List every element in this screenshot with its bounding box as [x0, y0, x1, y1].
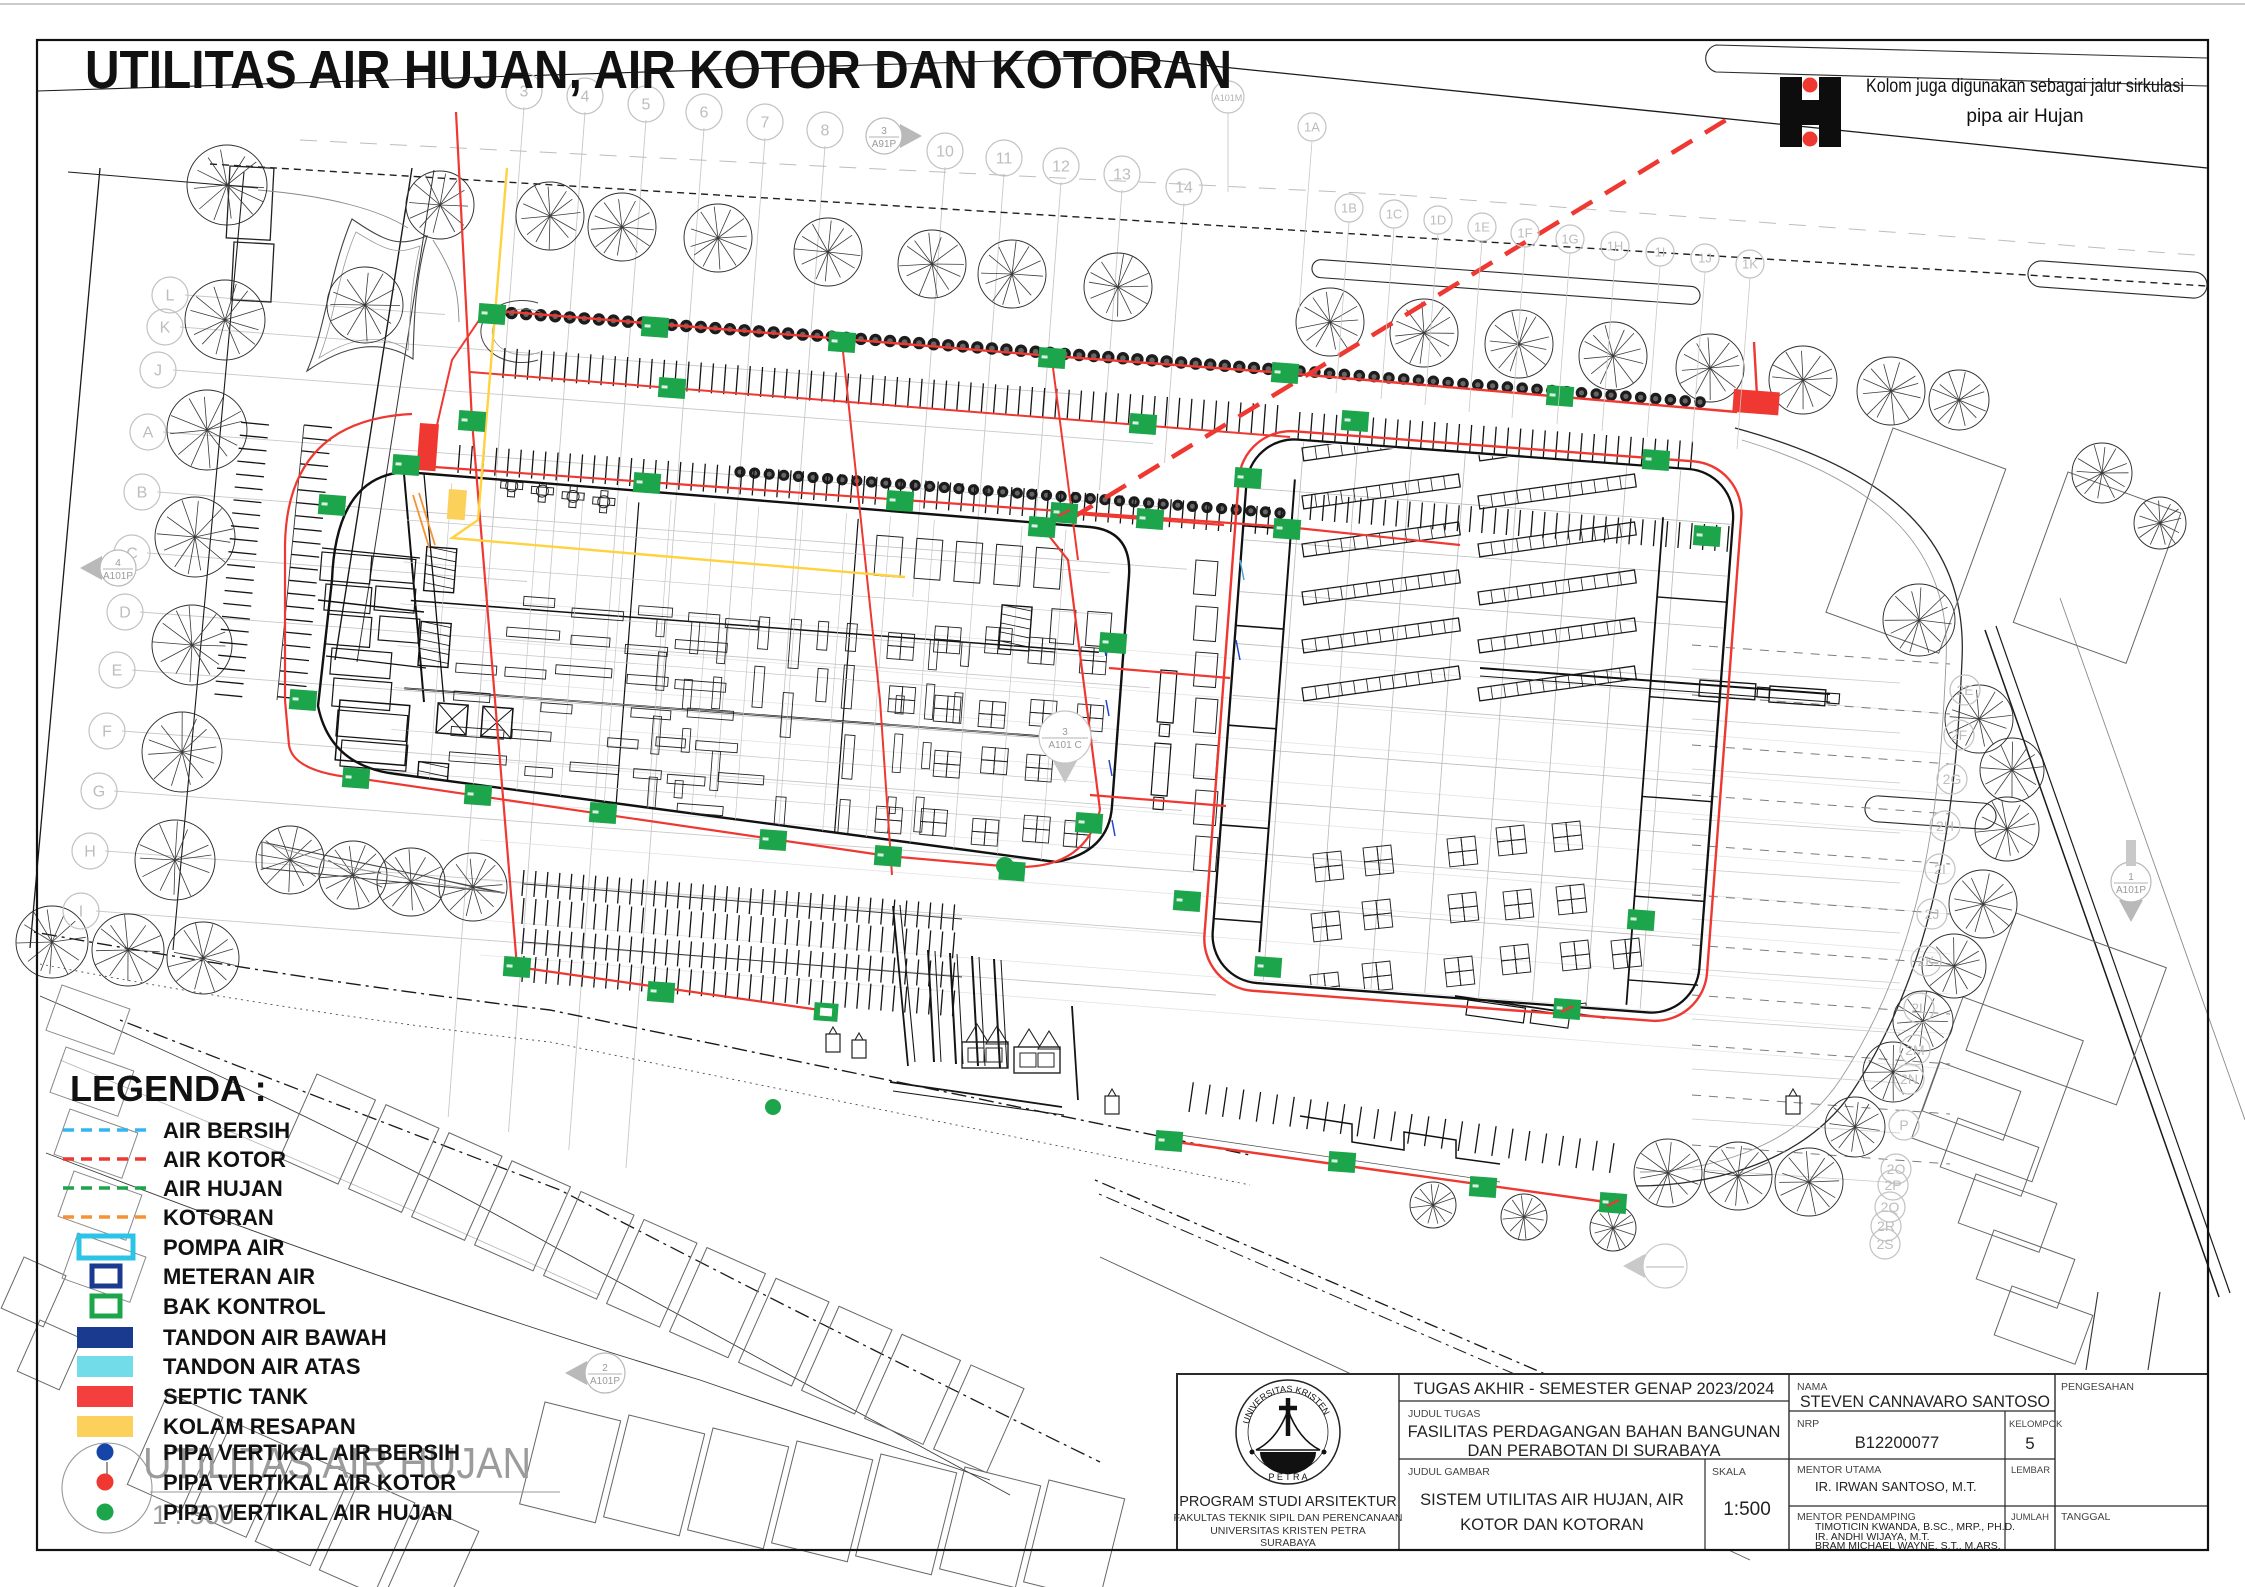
- svg-text:JUMLAH: JUMLAH: [2011, 1512, 2049, 1523]
- svg-text:TANGGAL: TANGGAL: [2061, 1511, 2111, 1523]
- svg-text:10: 10: [936, 144, 954, 161]
- svg-text:1H: 1H: [1607, 239, 1624, 254]
- svg-text:AIR BERSIH: AIR BERSIH: [163, 1118, 290, 1143]
- svg-text:METERAN AIR: METERAN AIR: [163, 1264, 315, 1289]
- svg-text:13: 13: [1113, 167, 1131, 184]
- svg-text:K: K: [160, 320, 171, 337]
- svg-text:11: 11: [996, 151, 1013, 168]
- svg-text:2I: 2I: [1934, 861, 1946, 877]
- svg-text:PIPA VERTIKAL AIR KOTOR: PIPA VERTIKAL AIR KOTOR: [163, 1470, 456, 1495]
- svg-text:NRP: NRP: [1797, 1418, 1819, 1430]
- svg-text:H: H: [84, 844, 96, 861]
- svg-text:SKALA: SKALA: [1712, 1466, 1746, 1478]
- svg-text:B: B: [137, 485, 148, 502]
- svg-text:1G: 1G: [1561, 232, 1578, 247]
- svg-text:2Q: 2Q: [1881, 1199, 1900, 1215]
- svg-text:AIR HUJAN: AIR HUJAN: [163, 1176, 283, 1201]
- svg-text:2S: 2S: [1876, 1236, 1893, 1252]
- svg-text:2E: 2E: [1956, 682, 1973, 698]
- svg-text:POMPA AIR: POMPA AIR: [163, 1235, 285, 1260]
- svg-text:8: 8: [821, 123, 830, 140]
- svg-text:D: D: [119, 605, 131, 622]
- svg-text:KOTOR DAN KOTORAN: KOTOR DAN KOTORAN: [1460, 1516, 1644, 1534]
- svg-text:UTILITAS AIR HUJAN, AIR KOTOR: UTILITAS AIR HUJAN, AIR KOTOR DAN KOTORA…: [85, 40, 1232, 100]
- svg-text:A: A: [143, 425, 154, 442]
- svg-text:2N: 2N: [1900, 1071, 1918, 1087]
- svg-text:LEMBAR: LEMBAR: [2011, 1465, 2050, 1476]
- svg-text:SEPTIC TANK: SEPTIC TANK: [163, 1384, 308, 1409]
- svg-text:G: G: [93, 784, 105, 801]
- svg-text:FAKULTAS TEKNIK SIPIL DAN PERE: FAKULTAS TEKNIK SIPIL DAN PERENCANAAN: [1174, 1512, 1403, 1524]
- svg-text:SURABAYA: SURABAYA: [1260, 1537, 1316, 1549]
- svg-text:DAN PERABOTAN DI SURABAYA: DAN PERABOTAN DI SURABAYA: [1467, 1442, 1720, 1460]
- svg-text:1J: 1J: [1698, 251, 1712, 266]
- svg-text:A101P: A101P: [2116, 885, 2146, 896]
- svg-text:A101P: A101P: [590, 1376, 620, 1387]
- svg-text:KOLAM RESAPAN: KOLAM RESAPAN: [163, 1414, 356, 1439]
- svg-text:7: 7: [761, 115, 770, 132]
- svg-text:1C: 1C: [1386, 207, 1403, 222]
- svg-text:pipa air Hujan: pipa air Hujan: [1966, 106, 2083, 127]
- svg-text:PENGESAHAN: PENGESAHAN: [2061, 1381, 2134, 1393]
- svg-text:STEVEN CANNAVARO SANTOSO: STEVEN CANNAVARO SANTOSO: [1800, 1393, 2050, 1411]
- svg-text:2H: 2H: [1936, 818, 1954, 834]
- svg-text:2P: 2P: [1884, 1177, 1901, 1193]
- svg-text:L: L: [166, 288, 175, 305]
- svg-text:NAMA: NAMA: [1797, 1381, 1827, 1393]
- svg-text:2F: 2F: [1951, 727, 1967, 743]
- svg-text:1D: 1D: [1430, 213, 1447, 228]
- svg-text:TANDON AIR BAWAH: TANDON AIR BAWAH: [163, 1325, 387, 1350]
- svg-text:E: E: [112, 663, 123, 680]
- svg-text:PIPA VERTIKAL AIR BERSIH: PIPA VERTIKAL AIR BERSIH: [163, 1440, 460, 1465]
- svg-text:2M: 2M: [1905, 1042, 1924, 1058]
- svg-text:6: 6: [700, 105, 709, 122]
- svg-text:I: I: [79, 904, 83, 921]
- svg-text:1B: 1B: [1341, 201, 1357, 216]
- svg-text:1F: 1F: [1517, 226, 1532, 241]
- svg-text:TANDON AIR ATAS: TANDON AIR ATAS: [163, 1354, 361, 1379]
- svg-text:1E: 1E: [1474, 220, 1490, 235]
- svg-text:A101 C: A101 C: [1048, 740, 1081, 751]
- svg-text:1: 1: [2128, 872, 2134, 883]
- svg-text:12: 12: [1052, 159, 1070, 176]
- svg-text:AIR KOTOR: AIR KOTOR: [163, 1147, 286, 1172]
- svg-text:F: F: [102, 724, 112, 741]
- svg-text:J: J: [154, 363, 162, 380]
- svg-text:1A: 1A: [1304, 120, 1320, 135]
- svg-text:P E T R A: P E T R A: [1268, 1472, 1307, 1482]
- svg-text:1K: 1K: [1742, 257, 1758, 272]
- svg-text:KELOMPOK: KELOMPOK: [2009, 1419, 2063, 1430]
- svg-text:5: 5: [2025, 1434, 2034, 1453]
- svg-text:1:500: 1:500: [1723, 1499, 1771, 1520]
- svg-text:4: 4: [115, 558, 121, 569]
- svg-text:3: 3: [881, 126, 887, 137]
- svg-text:2G: 2G: [1943, 771, 1962, 787]
- svg-text:Kolom juga digunakan sebagai j: Kolom juga digunakan sebagai jalur sirku…: [1866, 76, 2184, 97]
- svg-text:JUDUL TUGAS: JUDUL TUGAS: [1408, 1408, 1480, 1420]
- svg-text:3: 3: [1062, 727, 1068, 738]
- svg-text:LEGENDA :: LEGENDA :: [70, 1068, 267, 1109]
- svg-text:PIPA VERTIKAL AIR HUJAN: PIPA VERTIKAL AIR HUJAN: [163, 1500, 453, 1525]
- svg-text:2: 2: [602, 1363, 608, 1374]
- svg-text:2K: 2K: [1917, 953, 1935, 969]
- svg-text:IR. IRWAN SANTOSO, M.T.: IR. IRWAN SANTOSO, M.T.: [1815, 1479, 1977, 1494]
- svg-text:A101P: A101P: [103, 571, 133, 582]
- svg-text:A91P: A91P: [872, 139, 897, 150]
- svg-text:2O: 2O: [1887, 1161, 1906, 1177]
- svg-text:BAK KONTROL: BAK KONTROL: [163, 1294, 326, 1319]
- svg-text:SISTEM UTILITAS AIR HUJAN, AIR: SISTEM UTILITAS AIR HUJAN, AIR: [1420, 1491, 1684, 1509]
- svg-text:2L: 2L: [1911, 1000, 1927, 1016]
- svg-text:P: P: [1899, 1117, 1908, 1133]
- svg-text:TUGAS AKHIR - SEMESTER GENAP 2: TUGAS AKHIR - SEMESTER GENAP 2023/2024: [1413, 1380, 1774, 1398]
- svg-text:PROGRAM STUDI ARSITEKTUR: PROGRAM STUDI ARSITEKTUR: [1179, 1494, 1397, 1510]
- svg-text:14: 14: [1175, 180, 1193, 197]
- svg-text:UNIVERSITAS KRISTEN PETRA: UNIVERSITAS KRISTEN PETRA: [1210, 1525, 1366, 1537]
- svg-text:KOTORAN: KOTORAN: [163, 1205, 274, 1230]
- svg-text:B12200077: B12200077: [1855, 1434, 1939, 1452]
- svg-text:1I: 1I: [1655, 245, 1666, 260]
- svg-text:FASILITAS PERDAGANGAN BAHAN BA: FASILITAS PERDAGANGAN BAHAN BANGUNAN: [1408, 1423, 1781, 1441]
- svg-text:MENTOR UTAMA: MENTOR UTAMA: [1797, 1464, 1881, 1476]
- svg-text:JUDUL GAMBAR: JUDUL GAMBAR: [1408, 1466, 1490, 1478]
- svg-text:2J: 2J: [1925, 906, 1940, 922]
